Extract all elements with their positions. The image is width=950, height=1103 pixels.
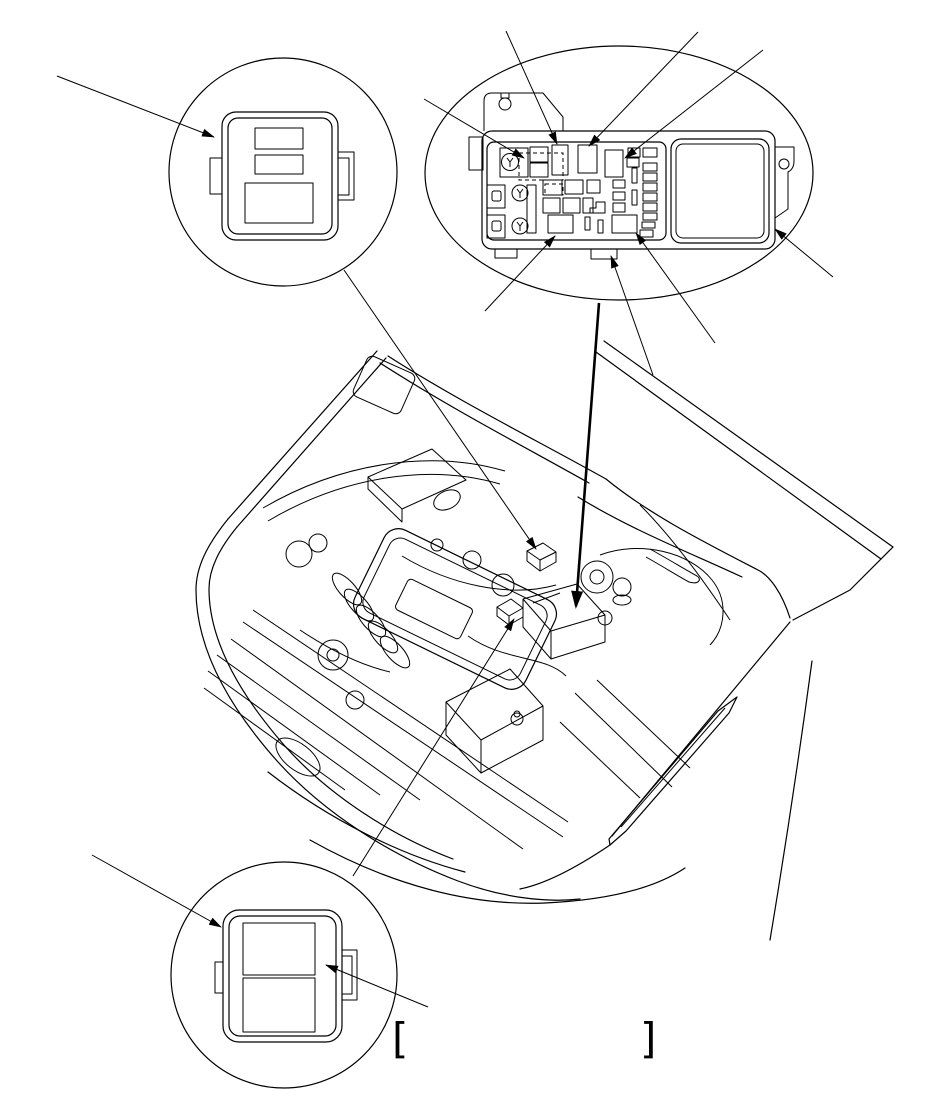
hood-latch: [351, 354, 416, 415]
fuse-box-bottom-tab: [591, 249, 617, 259]
radiator-support: [263, 461, 505, 508]
fuse-box-callout-arrows: [424, 31, 833, 606]
fuse-box-right-tab: [775, 147, 794, 218]
fuse-relay-box-drawing: [469, 93, 794, 259]
left-bracket-text: [: [392, 1014, 408, 1063]
fuse-box-cover: [671, 139, 769, 243]
hood-edge: [604, 341, 893, 547]
headlight: [609, 697, 737, 845]
reservoir-cap: [286, 541, 312, 567]
leader-relay-a-to-bay: [344, 270, 536, 549]
small-relay-a-in-bay: [527, 543, 556, 571]
strut-tower: [581, 505, 730, 645]
fuse-grid: [530, 145, 657, 237]
callout-circle-top-left: [57, 58, 536, 549]
fuse-box-left-tab: [469, 137, 483, 170]
battery: [446, 669, 543, 773]
grille: [204, 610, 568, 849]
engine-mount: [368, 449, 466, 509]
relay-b-left-tab: [215, 962, 223, 993]
small-relay-b-in-bay: [497, 599, 523, 625]
leader-fuse-box-to-bay: [576, 303, 599, 606]
right-bracket-text: ]: [640, 1014, 656, 1063]
engine: [263, 354, 566, 709]
engine-bay-drawing: [196, 341, 893, 940]
callout-ellipse-fuse-box: [424, 31, 833, 606]
left-fender-edge: [228, 351, 377, 519]
relay-a-left-tab: [210, 158, 222, 194]
callout-circle-bottom-left: [92, 619, 514, 1088]
relay-b-drawing: [215, 910, 357, 1042]
battery-terminal: [511, 713, 523, 725]
under-hood-fuse-box-in-bay: [523, 584, 605, 659]
fuse-box-top-bracket: [484, 93, 563, 131]
manual-figure-page: [ ]: [0, 0, 950, 1103]
callout-arrow-relay-a: [57, 76, 214, 137]
relay-a-drawing: [210, 112, 354, 240]
bumper: [268, 772, 465, 872]
relay-a-right-tab: [338, 152, 354, 200]
engine-compartment-diagram: [ ]: [0, 0, 950, 1103]
leader-relay-b-to-bay: [353, 619, 514, 876]
callout-arrow-relay-b: [92, 855, 221, 927]
callout-arrow-relay-b-window: [326, 965, 428, 1007]
